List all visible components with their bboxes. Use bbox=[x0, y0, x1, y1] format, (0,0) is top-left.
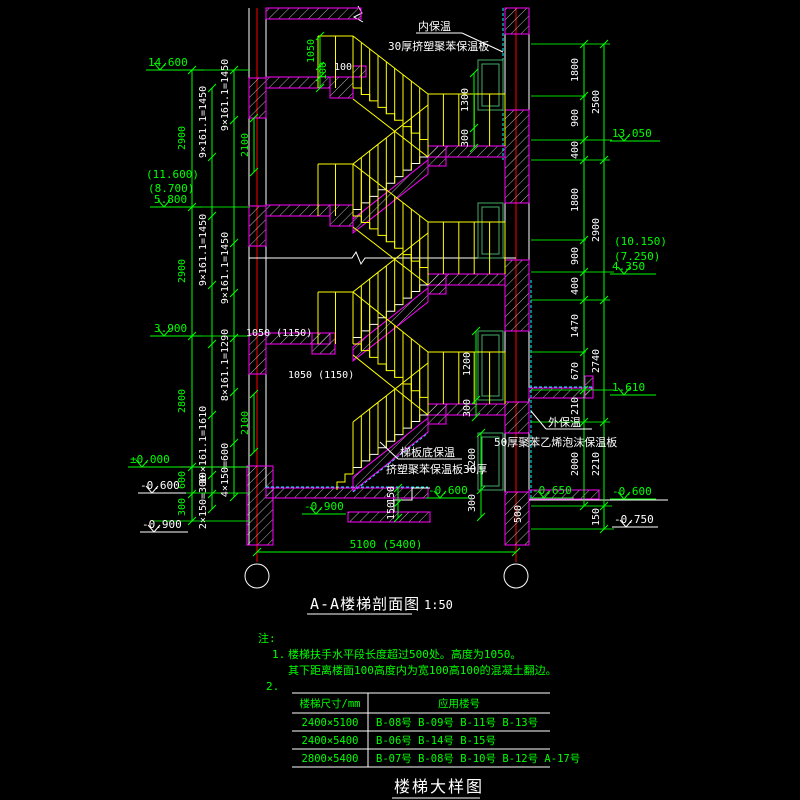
section-scale: 1:50 bbox=[424, 598, 453, 612]
note2-number: 2. bbox=[266, 680, 279, 693]
dim-win-sill-a: 300 bbox=[460, 129, 471, 147]
level-5800: 5.800 bbox=[154, 193, 187, 206]
dim-r2500: 2500 bbox=[591, 90, 602, 114]
titles: A-A楼梯剖面图 1:50 楼梯大样图 bbox=[307, 595, 484, 798]
axis-bubble-right bbox=[504, 564, 528, 588]
label-inner-insulation-board: 30厚挤塑聚苯保温板 bbox=[388, 39, 489, 53]
dim-r1470: 1470 bbox=[570, 314, 581, 338]
dim-win-sill-c: 300 bbox=[467, 494, 478, 512]
level-0000: ±0.000 bbox=[130, 453, 170, 466]
level-4350: 4.350 bbox=[612, 260, 645, 273]
level-11600: (11.600) bbox=[146, 168, 199, 181]
stair-table: 楼梯尺寸/mm 应用楼号 2400×5100 B-08号 B-09号 B-11号… bbox=[292, 693, 580, 767]
label-soffit-insulation: 梯板底保温 bbox=[400, 445, 455, 459]
row1-buildings: B-08号 B-09号 B-11号 B-13号 bbox=[376, 717, 538, 729]
axis-bubble-left bbox=[245, 564, 269, 588]
left-dimension-chain: 2900 2900 2800 600 300 9×161.1=1450 9×16… bbox=[150, 59, 354, 529]
table-row: 2400×5100 B-08号 B-09号 B-11号 B-13号 bbox=[302, 717, 539, 729]
dim-500: 500 bbox=[513, 505, 524, 523]
detail-title: 楼梯大样图 bbox=[394, 777, 484, 796]
level-13050: 13.050 bbox=[612, 127, 652, 140]
section-title: A-A楼梯剖面图 bbox=[310, 595, 420, 613]
window-dimensions: 1300 300 1200 300 1200 300 bbox=[460, 69, 485, 521]
notes-heading: 注: bbox=[258, 631, 276, 645]
dim-r2900: 2900 bbox=[591, 218, 602, 242]
dim-floor-height-2: 2900 bbox=[177, 259, 188, 283]
label-outer-insulation: 外保温 bbox=[548, 415, 581, 429]
dim-r900a: 900 bbox=[570, 109, 581, 127]
cut-flight-2 bbox=[353, 288, 428, 361]
note1-line1: 楼梯扶手水平段长度超过500处。高度为1050。 bbox=[288, 647, 521, 661]
dim-landing-width-2: 1050 (1150) bbox=[288, 370, 354, 381]
row2-size: 2400×5400 bbox=[302, 735, 359, 747]
dim-2100a: 2100 bbox=[240, 133, 251, 157]
dim-2100b: 2100 bbox=[240, 411, 251, 435]
row3-size: 2800×5400 bbox=[302, 753, 359, 765]
row1-size: 2400×5100 bbox=[302, 717, 359, 729]
rail-curb bbox=[353, 66, 366, 77]
dim-steps-2x150: 2×150=300 bbox=[198, 475, 209, 529]
left-foundation bbox=[247, 466, 273, 545]
dim-flight-8: 8×161.1=1290 bbox=[220, 329, 231, 401]
dim-steps-4x150: 4×150=600 bbox=[220, 443, 231, 497]
level-14600: 14.600 bbox=[148, 56, 188, 69]
label-outer-insulation-board: 50厚聚苯乙烯泡沫保温板 bbox=[494, 435, 617, 449]
dim-r2000: 2000 bbox=[570, 452, 581, 476]
dim-flight-10: 10×161.1=1610 bbox=[198, 406, 209, 484]
notes: 注: 1. 楼梯扶手水平段长度超过500处。高度为1050。 其下距离楼面100… bbox=[258, 631, 557, 693]
dim-flight-9a: 9×161.1=1450 bbox=[198, 86, 209, 158]
dim-r670: 670 bbox=[570, 362, 581, 380]
dim-total-width: 5100 (5400) bbox=[350, 538, 423, 551]
dim-r900b: 900 bbox=[570, 247, 581, 265]
dim-r400b: 400 bbox=[570, 277, 581, 295]
level-m0600-left: -0.600 bbox=[140, 479, 180, 492]
dim-r1800a: 1800 bbox=[570, 58, 581, 82]
row3-buildings: B-07号 B-08号 B-10号 B-12号 A-17号 bbox=[376, 753, 580, 765]
break-line-mid bbox=[249, 252, 516, 264]
note1-line2: 其下距离楼面100高度内为宽100高100的混凝土翻边。 bbox=[288, 663, 557, 677]
dim-r210: 210 bbox=[570, 397, 581, 415]
label-soffit-board: 挤塑聚苯保温板30厚 bbox=[386, 462, 487, 476]
dim-300: 300 bbox=[177, 498, 188, 516]
level-m0650: -0.650 bbox=[532, 484, 572, 497]
cad-stair-section-drawing: 5100 (5400) bbox=[0, 0, 800, 800]
dim-floor-height-3: 2800 bbox=[177, 389, 188, 413]
dim-flight-9b: 9×161.1=1450 bbox=[198, 214, 209, 286]
level-m0750: -0.750 bbox=[614, 513, 654, 526]
dim-flight-9d: 9×161.1=1450 bbox=[220, 232, 231, 304]
dim-r2210: 2210 bbox=[591, 452, 602, 476]
dim-r400a: 400 bbox=[570, 141, 581, 159]
level-1610: 1.610 bbox=[612, 381, 645, 394]
dim-150b: 150 bbox=[386, 502, 397, 520]
dim-150a: 150 bbox=[386, 486, 397, 504]
dim-win-1200a: 1200 bbox=[462, 352, 473, 376]
dim-win-sill-b: 300 bbox=[462, 399, 473, 417]
table-row: 2400×5400 B-06号 B-14号 B-15号 bbox=[302, 735, 496, 747]
dim-r2740: 2740 bbox=[591, 349, 602, 373]
dim-curb-100b: 100 bbox=[334, 62, 352, 73]
level-3900: 3.900 bbox=[154, 322, 187, 335]
label-inner-insulation: 内保温 bbox=[418, 19, 451, 33]
dim-floor-height-1: 2900 bbox=[177, 126, 188, 150]
ground-slab bbox=[266, 488, 428, 498]
level-m0900-mid: -0.900 bbox=[304, 500, 344, 513]
level-10150: (10.150) bbox=[614, 235, 667, 248]
level-m0600-right: -0.600 bbox=[612, 485, 652, 498]
dim-flight-9c: 9×161.1=1450 bbox=[220, 59, 231, 131]
table-row: 2800×5400 B-07号 B-08号 B-10号 B-12号 A-17号 bbox=[302, 753, 581, 765]
top-cut-slab bbox=[266, 8, 361, 19]
dim-curb-100a: 100 bbox=[318, 62, 329, 80]
level-m0900-left: -0.900 bbox=[142, 518, 182, 531]
level-m0600-mid: -0.600 bbox=[428, 484, 468, 497]
dim-win-1300: 1300 bbox=[460, 88, 471, 112]
row2-buildings: B-06号 B-14号 B-15号 bbox=[376, 735, 496, 747]
dim-r1800b: 1800 bbox=[570, 188, 581, 212]
dim-r150: 150 bbox=[591, 508, 602, 526]
dim-landing-width-1: 1050 (1150) bbox=[246, 328, 312, 339]
dim-rail-1050: 1050 bbox=[306, 39, 317, 63]
note1-number: 1. bbox=[272, 648, 285, 661]
table-header-size: 楼梯尺寸/mm bbox=[300, 697, 361, 710]
table-header-buildings: 应用楼号 bbox=[438, 697, 480, 710]
